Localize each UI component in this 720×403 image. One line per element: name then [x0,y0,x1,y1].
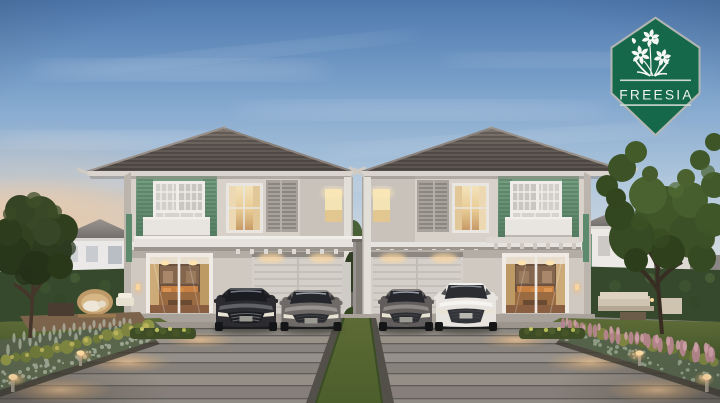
svg-text:FREESIA: FREESIA [619,87,693,102]
